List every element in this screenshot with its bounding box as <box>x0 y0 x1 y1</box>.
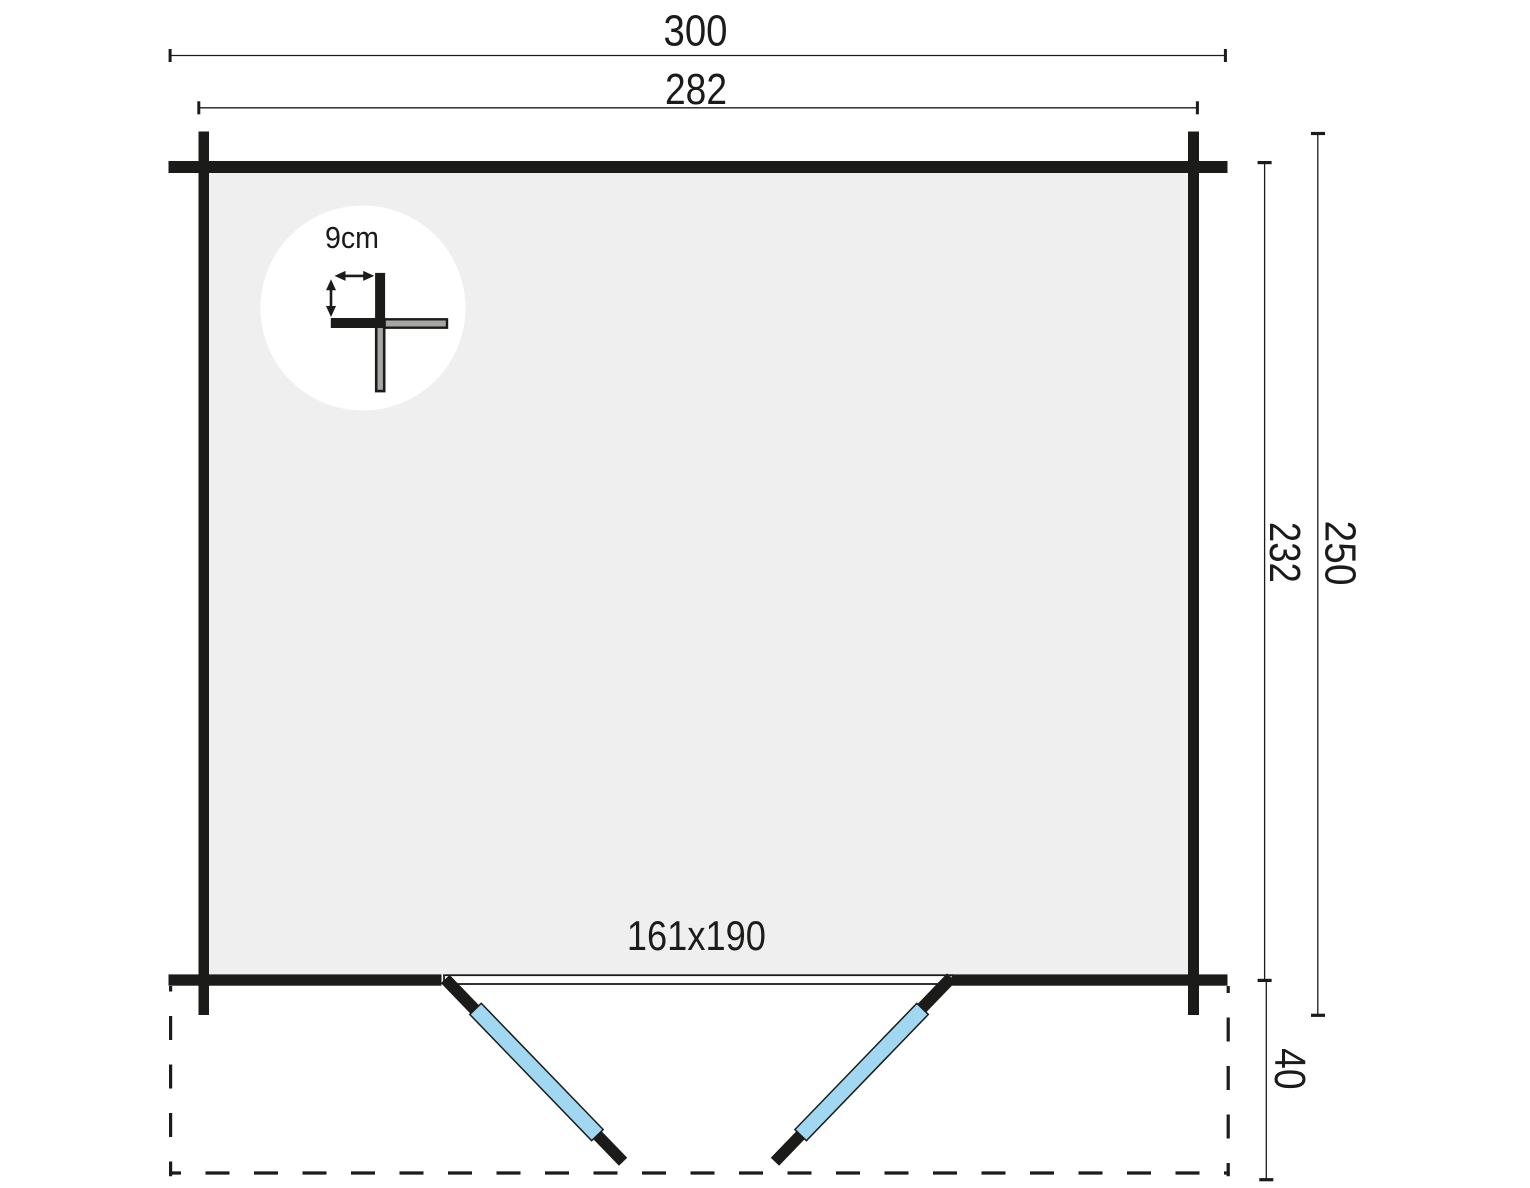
svg-text:282: 282 <box>665 65 727 114</box>
svg-text:232: 232 <box>1260 522 1309 583</box>
svg-text:9cm: 9cm <box>325 220 379 255</box>
svg-text:300: 300 <box>664 7 728 56</box>
svg-text:250: 250 <box>1316 521 1365 586</box>
svg-text:40: 40 <box>1265 1048 1314 1090</box>
svg-text:161x190: 161x190 <box>627 912 766 959</box>
